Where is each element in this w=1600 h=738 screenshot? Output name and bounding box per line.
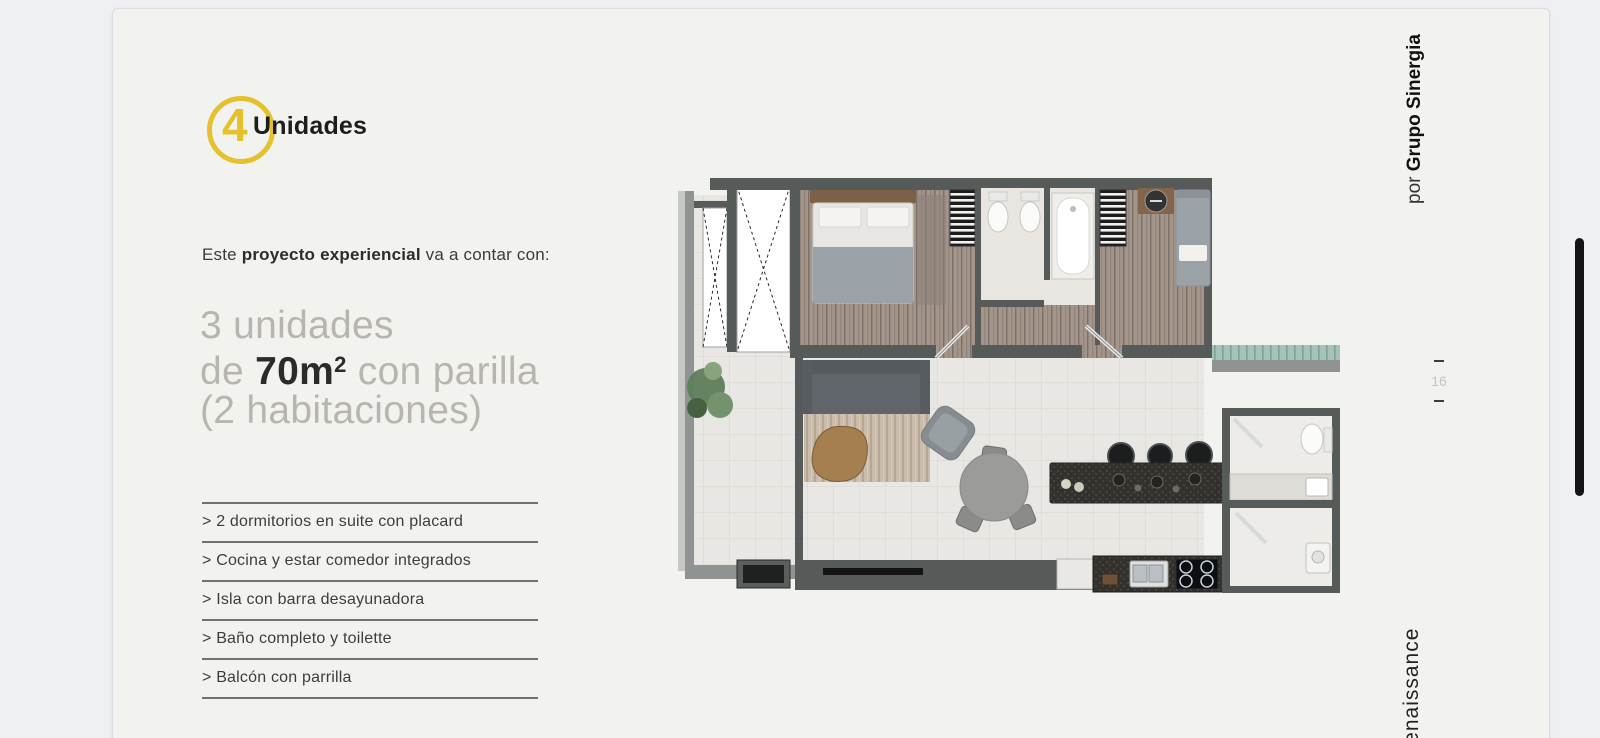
feature-item: > Cocina y estar comedor integrados [202, 541, 538, 580]
closet-1 [950, 190, 975, 246]
toilette [1222, 408, 1340, 593]
scrollbar-thumb[interactable] [1575, 238, 1584, 496]
parrilla [737, 560, 790, 588]
logo-number: 4 [222, 99, 248, 151]
intro-text: Este proyecto experiencial va a contar c… [202, 245, 550, 265]
byline-brand: Grupo Sinergia [1404, 34, 1425, 171]
byline: por Grupo Sinergia [1404, 36, 1428, 204]
feature-item: > 2 dormitorios en suite con placard [202, 502, 538, 541]
shaft-x [694, 186, 790, 352]
features-list: > 2 dormitorios en suite con placard > C… [202, 502, 538, 699]
indicator-dash-top [1434, 360, 1444, 362]
headline-area: 70m [255, 350, 334, 393]
indicator-dash-bottom [1434, 400, 1444, 402]
floor-plan [678, 175, 1340, 593]
intro-emphasis: proyecto experiencial [242, 245, 421, 264]
headline-line2: de 70m2 con parilla [200, 345, 539, 391]
feature-item: > Isla con barra desayunadora [202, 580, 538, 619]
headline-area-sup: 2 [334, 352, 347, 377]
page-indicator: 16 [1428, 360, 1450, 402]
headline-line1: 3 unidades [200, 306, 539, 345]
headline-line3: (2 habitaciones) [200, 391, 539, 430]
brand-watermark: Renaissance [1400, 620, 1426, 738]
logo-label: Unidades [253, 112, 367, 141]
bedroom-1 [810, 190, 946, 305]
feature-item: > Baño completo y toilette [202, 619, 538, 658]
kitchen-counter [795, 556, 1230, 592]
page-number: 16 [1431, 373, 1447, 389]
intro-suffix: va a contar con: [421, 245, 550, 264]
headline: 3 unidades de 70m2 con parilla (2 habita… [200, 306, 539, 430]
intro-prefix: Este [202, 245, 242, 264]
feature-divider [202, 697, 538, 699]
canvas: 4 Unidades Este proyecto experiencial va… [0, 0, 1600, 738]
balcony-right [1212, 345, 1340, 372]
closet-2 [1100, 190, 1126, 246]
feature-item: > Balcón con parrilla [202, 658, 538, 697]
